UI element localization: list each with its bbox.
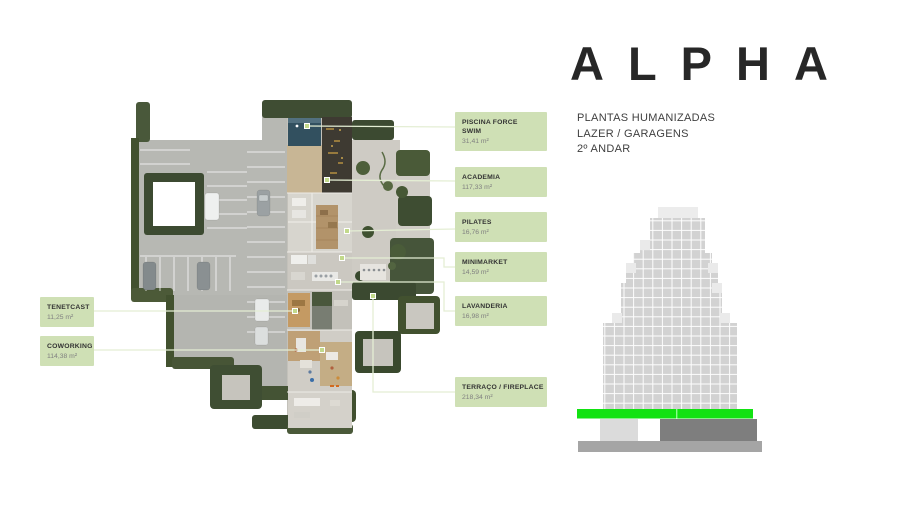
label-tenetcast-title: TENETCAST bbox=[47, 303, 87, 312]
label-coworking-title: COWORKING bbox=[47, 342, 87, 351]
site-plan bbox=[94, 100, 455, 434]
amenity-strip bbox=[287, 117, 352, 428]
label-minimarket-area: 14,59 m² bbox=[462, 268, 540, 277]
label-minimarket-title: MINIMARKET bbox=[462, 258, 540, 267]
label-tenetcast-area: 11,25 m² bbox=[47, 313, 87, 322]
label-piscina-area: 31,41 m² bbox=[462, 137, 540, 146]
label-academia-title: ACADEMIA bbox=[462, 173, 540, 182]
label-terraco-fireplace: TERRAÇO / FIREPLACE 218,34 m² bbox=[455, 377, 547, 407]
building-elevation-diagram bbox=[577, 207, 762, 452]
subtitle-line-3: 2º ANDAR bbox=[577, 142, 715, 158]
label-academia: ACADEMIA 117,33 m² bbox=[455, 167, 547, 197]
plan-subtitle: PLANTAS HUMANIZADAS LAZER / GARAGENS 2º … bbox=[577, 111, 715, 158]
label-minimarket: MINIMARKET 14,59 m² bbox=[455, 252, 547, 282]
label-academia-area: 117,33 m² bbox=[462, 183, 540, 192]
label-lavanderia: LAVANDERIA 16,98 m² bbox=[455, 296, 547, 326]
label-piscina-title: PISCINA FORCE SWIM bbox=[462, 118, 520, 136]
label-terraco-title: TERRAÇO / FIREPLACE bbox=[462, 383, 540, 392]
label-lavanderia-title: LAVANDERIA bbox=[462, 302, 540, 311]
subtitle-line-1: PLANTAS HUMANIZADAS bbox=[577, 111, 715, 127]
highlighted-floor-bar bbox=[577, 409, 753, 419]
subtitle-line-2: LAZER / GARAGENS bbox=[577, 127, 715, 143]
brand-logo: ALPHA bbox=[570, 36, 870, 91]
label-piscina-force-swim: PISCINA FORCE SWIM 31,41 m² bbox=[455, 112, 547, 151]
label-coworking-area: 114,38 m² bbox=[47, 352, 87, 361]
label-pilates-area: 16,76 m² bbox=[462, 228, 540, 237]
label-terraco-area: 218,34 m² bbox=[462, 393, 540, 402]
label-pilates-title: PILATES bbox=[462, 218, 540, 227]
label-coworking: COWORKING 114,38 m² bbox=[40, 336, 94, 366]
label-lavanderia-area: 16,98 m² bbox=[462, 312, 540, 321]
label-pilates: PILATES 16,76 m² bbox=[455, 212, 547, 242]
label-tenetcast: TENETCAST 11,25 m² bbox=[40, 297, 94, 327]
